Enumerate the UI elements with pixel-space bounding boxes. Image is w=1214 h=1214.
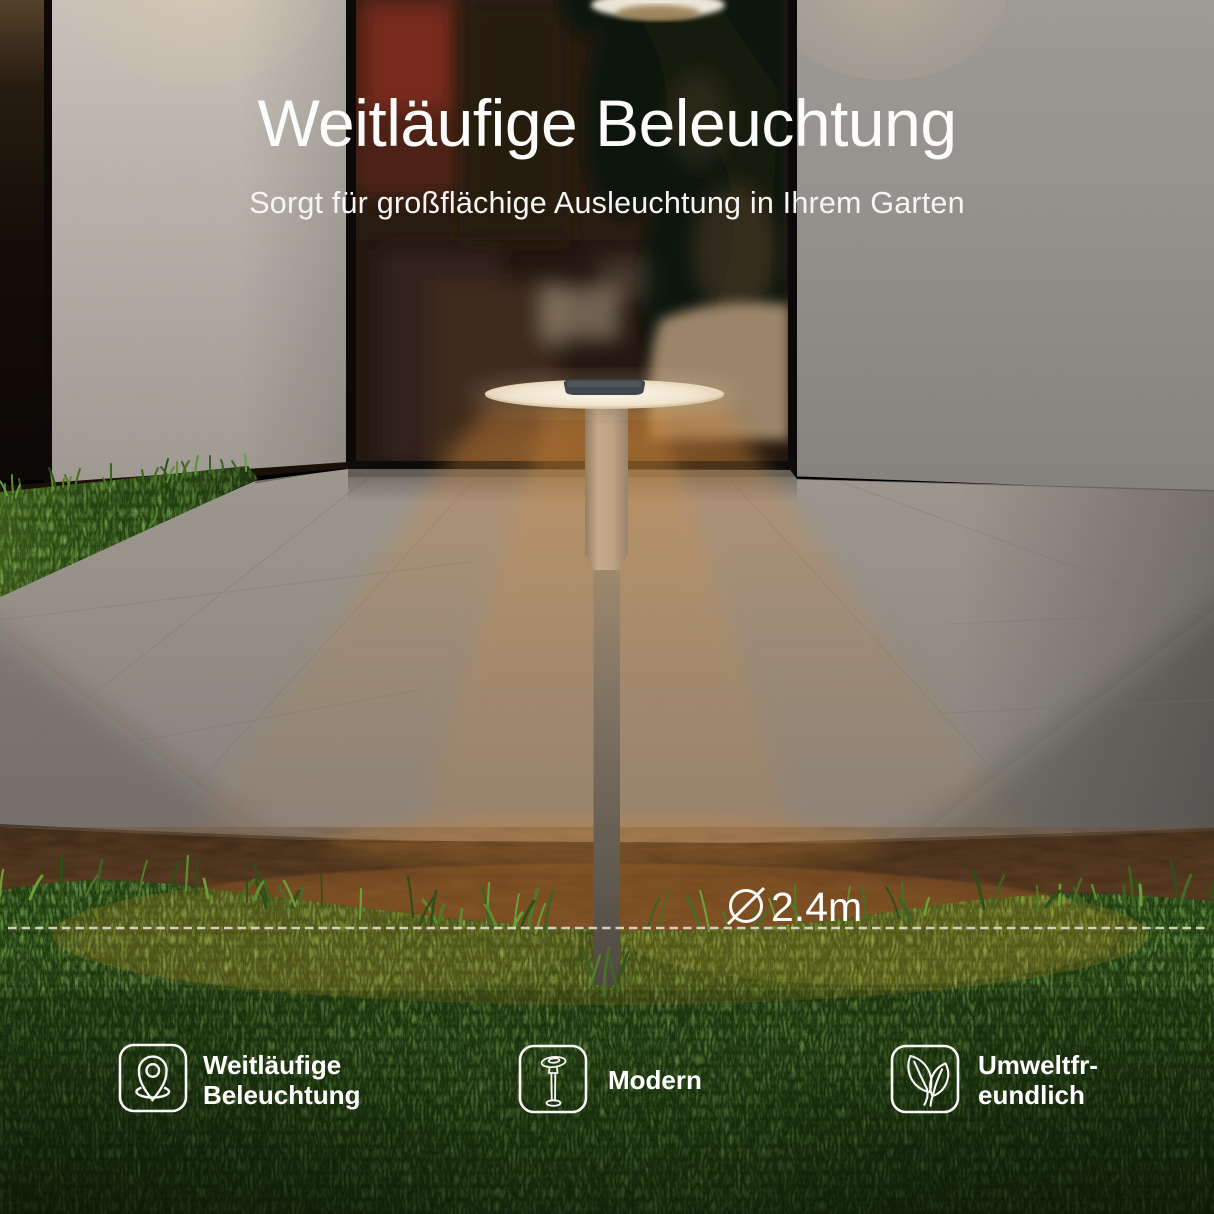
svg-text:eundlich: eundlich (978, 1080, 1085, 1110)
svg-text:Weitläufige: Weitläufige (203, 1050, 341, 1080)
svg-text:Umweltfr-: Umweltfr- (978, 1050, 1098, 1080)
svg-text:Weitläufige Beleuchtung: Weitläufige Beleuchtung (257, 86, 956, 160)
svg-text:Sorgt für großflächige Ausleuc: Sorgt für großflächige Ausleuchtung in I… (249, 186, 964, 220)
svg-text:Modern: Modern (608, 1065, 702, 1095)
svg-text:2.4m: 2.4m (771, 884, 862, 930)
svg-text:Beleuchtung: Beleuchtung (203, 1080, 360, 1110)
